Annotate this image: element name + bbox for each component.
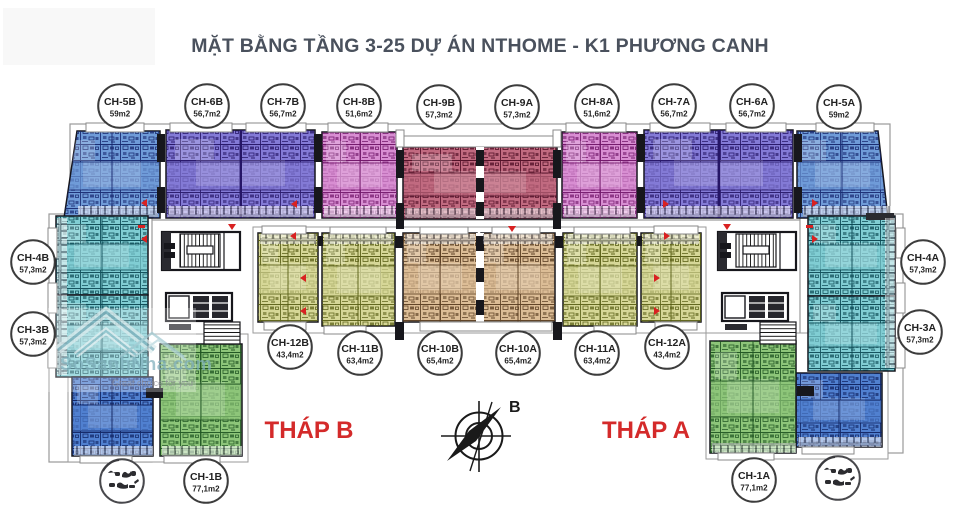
- svg-text:CH-3B: CH-3B: [17, 324, 50, 336]
- svg-text:CH-8B: CH-8B: [343, 96, 376, 108]
- svg-text:56,7m2: 56,7m2: [738, 110, 766, 119]
- svg-text:MẶT BẰNG TẦNG 3-25 DỰ ÁN NTHOM: MẶT BẰNG TẦNG 3-25 DỰ ÁN NTHOME - K1 PHƯ…: [191, 33, 769, 57]
- svg-text:CH-7B: CH-7B: [267, 96, 300, 108]
- svg-text:57,3m2: 57,3m2: [906, 336, 934, 345]
- svg-text:CH-4B: CH-4B: [17, 252, 50, 264]
- svg-text:CH-5A: CH-5A: [823, 97, 856, 109]
- svg-text:CH-10B: CH-10B: [421, 343, 459, 355]
- svg-text:43,4m2: 43,4m2: [653, 351, 681, 360]
- svg-text:59m2: 59m2: [829, 111, 850, 120]
- svg-text:77,1m2: 77,1m2: [192, 485, 220, 494]
- svg-text:CH-12B: CH-12B: [271, 337, 309, 349]
- svg-text:CH-5B: CH-5B: [104, 96, 137, 108]
- svg-text:CH-1A: CH-1A: [738, 470, 771, 482]
- svg-text:CH-9A: CH-9A: [501, 97, 534, 109]
- svg-text:57,3m2: 57,3m2: [19, 338, 47, 347]
- svg-text:B: B: [509, 399, 521, 416]
- svg-text:THÁP A: THÁP A: [602, 416, 690, 444]
- svg-text:63,4m2: 63,4m2: [583, 357, 611, 366]
- svg-text:57,3m2: 57,3m2: [909, 266, 937, 275]
- svg-text:63,4m2: 63,4m2: [346, 357, 374, 366]
- svg-text:CH-11A: CH-11A: [578, 343, 616, 355]
- svg-text:65,4m2: 65,4m2: [426, 357, 454, 366]
- svg-text:77,1m2: 77,1m2: [740, 484, 768, 493]
- svg-text:CH-10A: CH-10A: [499, 343, 537, 355]
- svg-text:CH-6A: CH-6A: [736, 96, 769, 108]
- svg-text:51,6m2: 51,6m2: [345, 110, 373, 119]
- svg-text:51,6m2: 51,6m2: [583, 110, 611, 119]
- svg-text:CH-6B: CH-6B: [191, 96, 224, 108]
- svg-text:CH-4A: CH-4A: [907, 252, 940, 264]
- svg-text:CH-9B: CH-9B: [423, 97, 456, 109]
- svg-text:56,7m2: 56,7m2: [660, 110, 688, 119]
- svg-text:57,3m2: 57,3m2: [503, 111, 531, 120]
- svg-text:CH-8A: CH-8A: [581, 96, 614, 108]
- svg-text:SoSanhNha.com: SoSanhNha.com: [60, 353, 212, 374]
- svg-text:CH-7A: CH-7A: [658, 96, 691, 108]
- svg-text:56,7m2: 56,7m2: [193, 110, 221, 119]
- svg-text:43,4m2: 43,4m2: [276, 351, 304, 360]
- svg-text:59m2: 59m2: [110, 110, 131, 119]
- svg-text:56,7m2: 56,7m2: [269, 110, 297, 119]
- svg-text:THÁP B: THÁP B: [265, 416, 354, 444]
- svg-text:65,4m2: 65,4m2: [504, 357, 532, 366]
- svg-text:57,3m2: 57,3m2: [425, 111, 453, 120]
- svg-text:CH-1B: CH-1B: [190, 471, 223, 483]
- svg-text:57,3m2: 57,3m2: [19, 266, 47, 275]
- svg-text:CH-3A: CH-3A: [904, 322, 937, 334]
- svg-text:Great choice for you: Great choice for you: [112, 378, 193, 388]
- svg-text:CH-11B: CH-11B: [341, 343, 379, 355]
- svg-text:CH-12A: CH-12A: [648, 337, 686, 349]
